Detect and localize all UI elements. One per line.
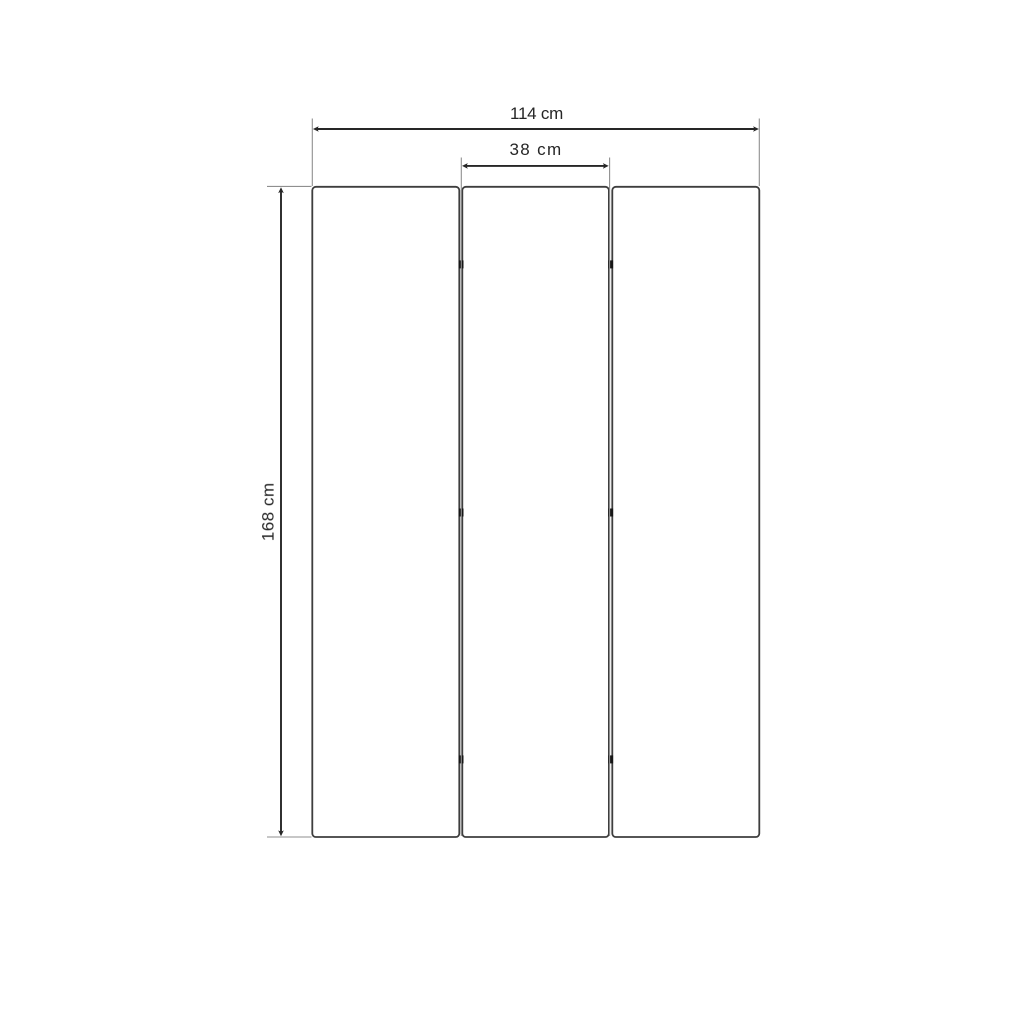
svg-text:114 cm: 114 cm bbox=[510, 104, 563, 123]
svg-text:168 cm: 168 cm bbox=[259, 482, 278, 541]
svg-text:38 cm: 38 cm bbox=[509, 140, 562, 159]
